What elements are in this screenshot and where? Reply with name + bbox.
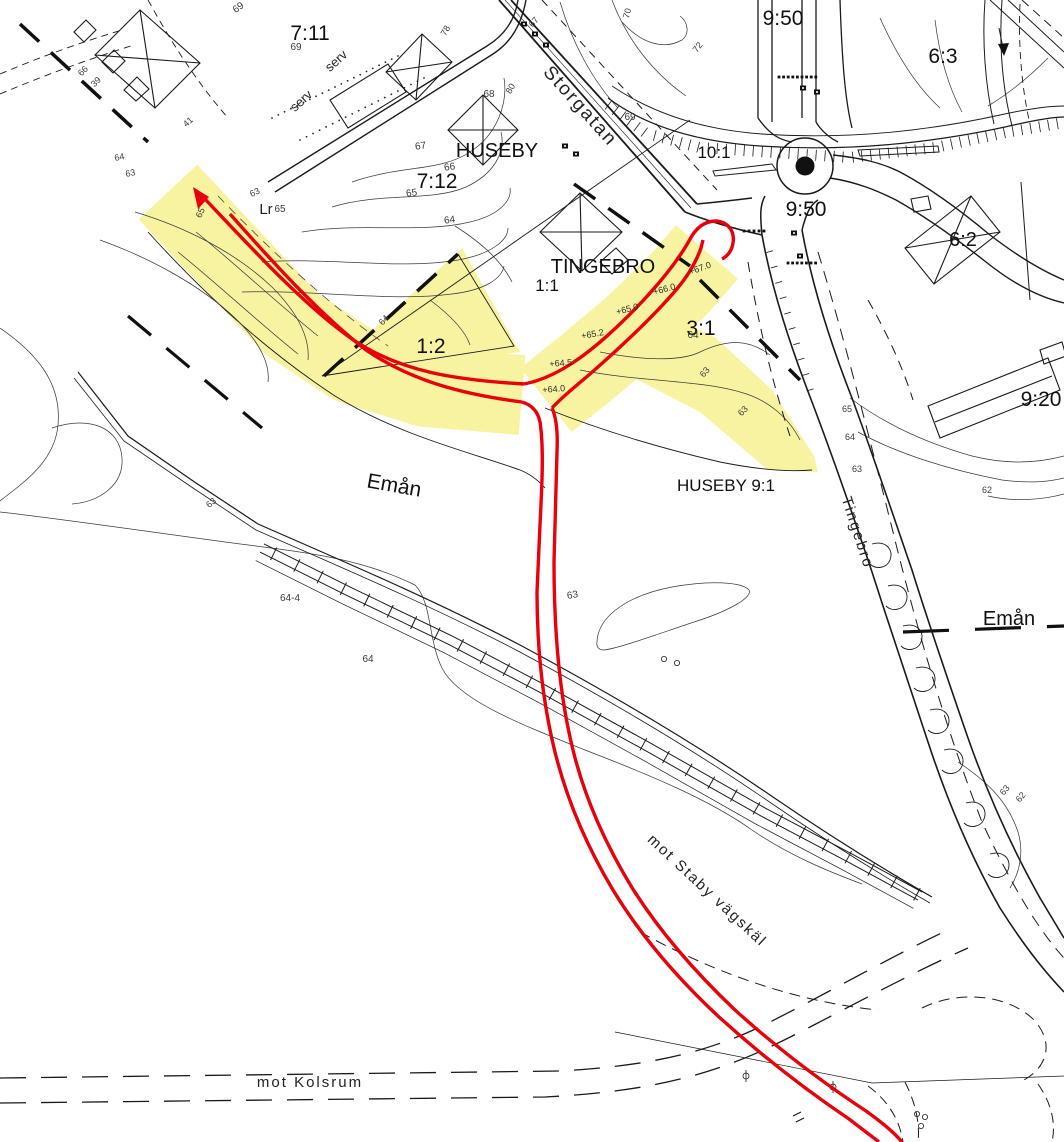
railway-rail	[256, 561, 914, 909]
crosswalk-dot	[805, 262, 808, 265]
hatch-tick	[340, 582, 346, 595]
cadastral-map: 7:117:121:11:23:110:19:509:506:36:29:20H…	[0, 0, 1064, 1142]
serv-dot	[328, 89, 330, 91]
serv-dot	[325, 126, 327, 128]
hatch-tick	[753, 146, 754, 157]
map-label-contour: 68	[483, 89, 495, 100]
hatch-tick	[679, 137, 682, 148]
map-label-small: serv	[322, 47, 351, 75]
roads	[0, 0, 1064, 1103]
fence-dashed	[148, 0, 228, 118]
serv-dot	[340, 83, 342, 85]
hatch-tick	[730, 789, 737, 801]
hatch-tick	[594, 713, 601, 725]
map-label-place: HUSEBY	[456, 140, 538, 162]
serv-dot	[384, 97, 386, 99]
railway-rail	[264, 544, 922, 892]
hatch-tick	[708, 777, 715, 789]
map-label-contour: 66	[443, 161, 456, 174]
tingebro-east-dashed	[818, 252, 1064, 958]
map-label-parcel: 9:50	[763, 7, 804, 30]
serv-dot	[410, 84, 412, 86]
map-canvas: 7:117:121:11:23:110:19:509:506:36:29:20H…	[0, 0, 1064, 1142]
serv-dot	[299, 139, 301, 141]
hatch-tick	[780, 147, 781, 158]
hatch-tick	[364, 594, 370, 607]
crosswalk-dot	[758, 230, 761, 233]
crosswalk-dot	[796, 76, 799, 79]
parcel-boundary	[1021, 182, 1030, 300]
crosswalk-dot	[801, 76, 804, 79]
hatch-tick	[572, 700, 579, 712]
serv-dot	[423, 77, 425, 79]
stream-dashed	[1019, 4, 1030, 124]
hatch-tick	[1030, 123, 1032, 134]
east-arm-north-edge	[833, 155, 1064, 280]
crosswalk-dot	[763, 230, 766, 233]
hatch-tick	[776, 814, 783, 826]
map-label-parcel: 7:12	[417, 170, 458, 193]
serv-dot	[332, 123, 334, 125]
map-label-contour: 63	[566, 589, 579, 602]
hatch-tick	[434, 627, 440, 640]
hatch-tick	[968, 135, 970, 146]
hatch-tick	[270, 548, 276, 561]
serv-dot	[271, 117, 273, 119]
serv-dot	[397, 55, 399, 57]
serv-dot	[404, 87, 406, 89]
crosswalk-dot	[787, 76, 790, 79]
map-label-contour: 63	[998, 783, 1012, 797]
hatch-tick	[879, 149, 880, 160]
hatch-tick	[780, 297, 787, 299]
north-arm-outer	[840, 0, 852, 128]
hatch-tick	[744, 145, 745, 156]
hatch-tick	[977, 133, 979, 144]
kolsrum-road-north	[0, 930, 948, 1078]
serv-dot	[385, 61, 387, 63]
hatch-tick	[959, 137, 961, 148]
roundabout-center-dot	[796, 157, 815, 176]
building-small	[74, 20, 96, 42]
hatch-tick	[891, 876, 898, 888]
map-labels: 7:117:121:11:23:110:19:509:506:36:29:20H…	[76, 0, 1062, 1091]
serv-dot	[338, 120, 340, 122]
crosswalk-dot	[787, 262, 790, 265]
map-label-contour: 64	[845, 432, 855, 442]
storgatan-east-edge	[511, 0, 697, 204]
map-label-contour: 69	[290, 42, 302, 53]
map-label-parcel: 1:1	[535, 276, 559, 295]
map-label-contour: 67	[414, 140, 427, 153]
hatch-tick	[1048, 120, 1050, 131]
stone-symbol	[922, 1114, 927, 1119]
hatch-tick	[798, 149, 799, 160]
serv-dot	[358, 110, 360, 112]
shore-contour	[0, 328, 58, 501]
hatch-tick	[735, 144, 736, 155]
serv-dot	[284, 111, 286, 113]
hatch-tick	[950, 139, 952, 150]
hatch-tick	[816, 150, 817, 161]
hatch-tick	[641, 128, 648, 137]
hatch-tick	[387, 605, 393, 618]
map-label-contour: 62	[1014, 790, 1028, 804]
tree-symbol	[901, 625, 922, 649]
sign-symbol-center	[802, 87, 804, 89]
map-label-contour: 66	[76, 64, 90, 78]
crosswalk-dot	[800, 262, 803, 265]
serv-dot	[306, 136, 308, 138]
hatch-tick	[822, 839, 829, 851]
building-barn	[386, 34, 452, 100]
hatch-tick	[640, 738, 647, 750]
hatch-tick	[1003, 127, 1005, 138]
map-label-contour: 41	[181, 115, 195, 129]
hatch-tick	[933, 142, 934, 153]
hatch-tick	[1012, 126, 1014, 137]
slash-marks	[793, 1112, 804, 1122]
sign-symbol-center	[799, 255, 801, 257]
highlight-corridor	[168, 192, 818, 472]
hatch-tick	[457, 639, 464, 651]
sign-symbol-center	[575, 153, 577, 155]
map-label-contour: 64	[113, 151, 125, 163]
hatch-tick	[888, 148, 889, 159]
hatch-tick	[802, 374, 809, 376]
building-small	[124, 77, 149, 101]
map-label-contour: 69	[231, 0, 247, 16]
tree-symbol	[914, 667, 935, 691]
serv-dot	[334, 86, 336, 88]
map-label-contour: 63	[204, 496, 218, 510]
map-label-contour: 64-4	[280, 593, 300, 604]
shore-contour	[0, 512, 862, 884]
hatch-tick	[317, 571, 323, 584]
hatch-tick	[834, 151, 835, 162]
map-label-contour: 64	[443, 214, 456, 227]
hatch-tick	[753, 802, 760, 814]
building-barn	[95, 10, 200, 108]
hatch-tick	[798, 358, 805, 360]
map-label-contour: 64	[687, 330, 699, 341]
hatch-tick	[784, 312, 791, 314]
crosswalk-dot	[743, 230, 746, 233]
map-label-contour: 65	[405, 187, 418, 200]
tree-symbol	[886, 585, 907, 609]
stone-symbol	[674, 660, 679, 665]
traffic-island	[713, 164, 776, 176]
map-label-contour: 65	[842, 404, 852, 414]
map-label-place: TINGEBRO	[551, 256, 655, 278]
boundary-dashed	[868, 300, 913, 400]
hatch-tick	[503, 663, 510, 675]
serv-dot	[366, 71, 368, 73]
sign-symbol-center	[816, 91, 818, 93]
fence-dashed	[0, 30, 134, 94]
map-label-contour: 70	[621, 7, 633, 19]
hatch-tick	[994, 129, 996, 140]
stone-symbol	[918, 1123, 923, 1128]
serv-dot	[345, 116, 347, 118]
hatch-tick	[1056, 118, 1058, 129]
sign-symbol-center	[545, 44, 547, 46]
contour-lines	[100, 0, 1064, 888]
map-label-contour: 64	[362, 654, 374, 665]
building-small	[102, 50, 125, 73]
crosswalk-dot	[805, 76, 808, 79]
map-label-contour: 63	[852, 464, 862, 474]
serv-dot	[319, 129, 321, 131]
river-centerline-west	[128, 316, 262, 428]
hatch-tick	[663, 751, 670, 763]
sign-symbol-center	[564, 145, 566, 147]
map-label-parcel: 6:2	[949, 229, 977, 251]
crosswalk-dot	[753, 230, 756, 233]
stone-symbol	[661, 656, 666, 661]
map-label-contour: 78	[439, 24, 453, 38]
hatch-tick	[789, 148, 790, 159]
map-label-contour: 65	[274, 204, 286, 215]
flow-arrow-head	[998, 43, 1009, 56]
crosswalk-dot	[791, 262, 794, 265]
hatch-tick	[480, 651, 487, 663]
serv-dot	[359, 74, 361, 76]
map-label-parcel: 9:20	[1021, 388, 1062, 411]
map-label-small: Lr	[259, 201, 272, 218]
serv-dot	[364, 106, 366, 108]
crosswalk-dot	[814, 76, 817, 79]
stream-lines	[984, 0, 1012, 126]
serv-dot	[372, 68, 374, 70]
serv-dot	[312, 133, 314, 135]
hatch-tick	[843, 152, 844, 163]
storgatan-inner-line	[505, 0, 691, 208]
map-label-parcel: 6:3	[928, 45, 957, 68]
serv-dot	[391, 58, 393, 60]
serv-dot	[351, 113, 353, 115]
hatch-tick	[762, 146, 763, 157]
map-label-parcel: 9:50	[786, 198, 827, 221]
hatch-tick	[688, 140, 691, 151]
serv-dot	[353, 77, 355, 79]
map-label-contour: 72	[691, 40, 705, 54]
tree-symbol	[964, 802, 985, 826]
ditch-dashed-loop	[922, 997, 1046, 1082]
sign-symbol-center	[534, 33, 536, 35]
hatch-tick	[986, 131, 988, 142]
hatch-tick	[775, 281, 782, 283]
hatch-tick	[411, 616, 417, 629]
building-house	[330, 64, 406, 128]
serv-dot	[347, 80, 349, 82]
hatch-tick	[526, 676, 533, 688]
serv-dot	[417, 80, 419, 82]
tingebro-east-edge	[802, 230, 1064, 938]
hatch-tick	[942, 141, 944, 152]
survey-line	[615, 1032, 1064, 1083]
crosswalk-dot	[782, 76, 785, 79]
serv-dot	[322, 92, 324, 94]
map-label-road: Tingebro	[838, 494, 877, 570]
crosswalk-dot	[796, 262, 799, 265]
serv-dot	[390, 93, 392, 95]
sign-symbol-center	[523, 23, 525, 25]
hatch-tick	[685, 764, 692, 776]
map-label-contour: 69	[624, 112, 636, 123]
map-label-contour: 62	[982, 485, 992, 495]
map-label-level: +64.5	[549, 357, 573, 369]
map-label-small: serv	[287, 87, 316, 115]
hatch-tick	[771, 147, 772, 158]
map-label-contour: 63	[248, 186, 261, 199]
map-label-contour: 39	[89, 75, 103, 89]
map-label-parcel: 10:1	[697, 143, 730, 162]
hatch-tick	[766, 251, 773, 253]
hatch-tick	[294, 559, 300, 572]
hatch-tick	[549, 688, 556, 700]
hatch-tick	[1021, 124, 1023, 135]
serv-dot	[315, 95, 317, 97]
hatch-tick	[793, 343, 800, 345]
map-label-place: Emån	[365, 470, 423, 502]
serv-dot	[377, 100, 379, 102]
map-label-place: HUSEBY 9:1	[677, 476, 775, 495]
map-label-contour: 80	[504, 82, 518, 96]
hatch-tick	[634, 122, 641, 131]
hatch-tick	[671, 135, 674, 146]
serv-dot	[378, 64, 380, 66]
hatch-tick	[1039, 121, 1041, 132]
crosswalk-dot	[748, 230, 751, 233]
sign-symbol-center	[793, 232, 795, 234]
hatch-tick	[617, 726, 624, 738]
hatch-tick	[771, 266, 778, 268]
serv-dot	[277, 114, 279, 116]
map-label-road: mot Kolsrum	[257, 1074, 363, 1091]
map-label-level: +64.0	[542, 383, 566, 395]
map-label-parcel: 1:2	[416, 335, 445, 358]
serv-dot	[397, 90, 399, 92]
island-outline	[597, 583, 750, 650]
hatch-tick	[799, 827, 806, 839]
crosswalk-dot	[778, 76, 781, 79]
crosswalk-dot	[814, 262, 817, 265]
map-label-contour: 63	[124, 167, 136, 179]
shore-contour	[52, 423, 122, 504]
water-features	[0, 232, 1064, 884]
crosswalk-dot	[791, 76, 794, 79]
hatch-tick	[825, 150, 826, 161]
boundaries	[0, 0, 1064, 1142]
crosswalk-dot	[810, 76, 813, 79]
crosswalk-dot	[810, 262, 813, 265]
serv-dot	[371, 103, 373, 105]
map-label-place: Emån	[983, 608, 1035, 630]
hatch-tick	[653, 130, 656, 141]
hatch-tick	[789, 327, 796, 329]
